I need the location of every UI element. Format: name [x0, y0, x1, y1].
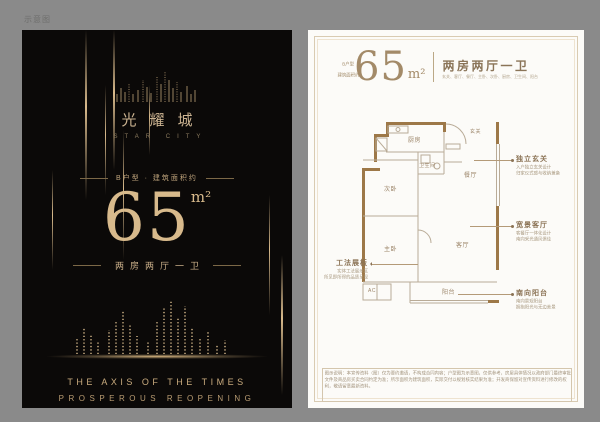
rooms-line: 玄关、客厅、餐厅、主卧、次卧、厨房、卫生间、阳台 — [442, 74, 538, 80]
callout-desc: 南向景观阳台拥抱阳光与无边美景 — [516, 298, 550, 310]
callout-title: 南向阳台 — [516, 288, 578, 298]
callout-arrow-line — [372, 264, 418, 265]
brand-name-en: STAR CITY — [22, 134, 292, 140]
callout-title: 独立玄关 — [516, 154, 578, 164]
horizon-glow — [47, 354, 267, 359]
room-label-dining: 餐厅 — [464, 170, 477, 179]
callout-balcony: 南向阳台 南向景观阳台拥抱阳光与无边美景 — [516, 288, 578, 314]
callout-craft-board: 工法展板 实体工法展示区所见即所得的品质呈现 — [310, 258, 368, 284]
room-label-kitchen: 厨房 — [408, 135, 421, 144]
slogan-line1: THE AXIS OF THE TIMES — [22, 377, 292, 387]
area-value: 65 — [103, 179, 191, 256]
callout-leader-line — [470, 226, 512, 227]
divider-rule — [206, 178, 234, 179]
callout-title: 宽景客厅 — [516, 220, 578, 230]
room-label-balcony: 阳台 — [442, 287, 455, 296]
divider-rule — [213, 265, 241, 266]
room-label-living: 客厅 — [456, 240, 469, 249]
callout-leader-line — [458, 294, 512, 295]
floor-plan: 厨房 卫生间 餐厅 玄关 次卧 主卧 客厅 阳台 AC — [350, 118, 510, 328]
room-label-bedroom2: 次卧 — [384, 184, 397, 193]
brand-name-zh: 光耀城 — [22, 109, 292, 130]
city-skyline-graphic — [47, 298, 267, 358]
watermark-label: 示意图 — [24, 14, 51, 25]
room-label-bath: 卫生间 — [419, 162, 436, 169]
divider-rule — [73, 265, 101, 266]
header-area-unit: m² — [408, 67, 426, 82]
header-divider — [433, 52, 434, 82]
area-unit: m² — [191, 188, 211, 206]
brand-skyline-graphic — [111, 70, 203, 102]
callout-desc: 客餐厅一体化设计南向采光通风俱佳 — [516, 230, 550, 242]
disclaimer-box: 图示说明：本宣传资料（图）仅为要约邀请，不构成合同内容；户型图为示意图，仅供参考… — [322, 368, 572, 402]
header-area-value: 65 — [354, 50, 407, 84]
room-label-entry: 玄关 — [470, 128, 481, 135]
floor-plan-drawing — [350, 118, 510, 328]
disclaimer-text: 图示说明：本宣传资料（图）仅为要约邀请，不构成合同内容；户型图为示意图，仅供参考… — [323, 369, 572, 391]
poster-footer: THE AXIS OF THE TIMES PROSPEROUS REOPENI… — [22, 298, 292, 403]
callout-leader-line — [474, 160, 512, 161]
slogan-line2: PROSPEROUS REOPENING — [22, 394, 292, 403]
callout-desc: 实体工法展示区所见即所得的品质呈现 — [324, 268, 368, 277]
room-label-ac: AC — [368, 288, 376, 294]
brochure-canvas: 示意图 光耀城 — [0, 0, 600, 422]
callout-title: 工法展板 — [310, 258, 368, 268]
poster-area-block: B户型 · 建筑面积约 65m² 两房两厅一卫 — [22, 173, 292, 272]
layout-title: 两房两厅一卫 — [442, 57, 600, 74]
floorplan-page: B户型 建筑面积约 65 m² 两房两厅一卫 玄关、客厅、餐厅、主卧、次卧、厨房… — [308, 30, 584, 408]
area-prefix-label: 建筑面积约 — [338, 72, 355, 78]
room-label-master: 主卧 — [384, 244, 397, 253]
unit-type-label: B户型 — [338, 61, 355, 67]
callout-entry: 独立玄关 入户独立玄关设计归家仪式感与收纳兼备 — [516, 154, 578, 180]
brand-block: 光耀城 STAR CITY — [22, 70, 292, 140]
callout-desc: 入户独立玄关设计归家仪式感与收纳兼备 — [516, 164, 550, 176]
layout-subtitle: 两房两厅一卫 — [109, 259, 205, 272]
left-poster: 光耀城 STAR CITY B户型 · 建筑面积约 65m² 两房两厅一卫 — [22, 30, 292, 408]
callout-living: 宽景客厅 客餐厅一体化设计南向采光通风俱佳 — [516, 220, 578, 246]
page-header: B户型 建筑面积约 65 m² 两房两厅一卫 玄关、客厅、餐厅、主卧、次卧、厨房… — [324, 50, 600, 84]
